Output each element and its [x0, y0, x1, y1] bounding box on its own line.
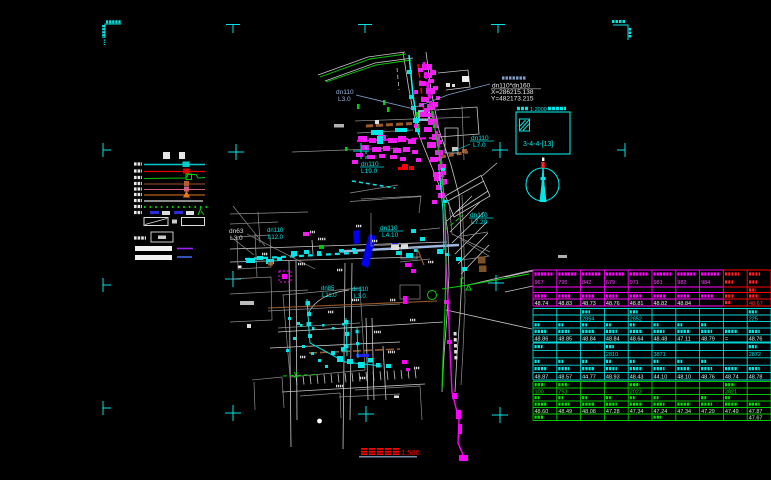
svg-text:842: 842 [582, 280, 591, 286]
svg-text:48.60: 48.60 [535, 409, 549, 415]
svg-text:48.76: 48.76 [701, 375, 715, 381]
svg-text:48.85: 48.85 [558, 337, 572, 343]
svg-text:967: 967 [535, 280, 544, 286]
svg-text:dn63: dn63 [229, 228, 244, 235]
svg-text:48.86: 48.86 [535, 337, 549, 343]
svg-text:48.84: 48.84 [677, 301, 691, 307]
svg-text:48.43: 48.43 [630, 375, 644, 381]
svg-text:L3.0: L3.0 [338, 96, 351, 103]
svg-text:L12.0: L12.0 [268, 235, 284, 241]
svg-text:44.77: 44.77 [582, 375, 596, 381]
svg-text:48.82: 48.82 [654, 301, 668, 307]
svg-text:981: 981 [654, 280, 663, 286]
svg-text:48.64: 48.64 [630, 337, 644, 343]
svg-text:dn85: dn85 [321, 286, 335, 292]
svg-text:L11.0: L11.0 [322, 293, 337, 299]
svg-text:48.10: 48.10 [677, 375, 691, 381]
svg-text:dn110: dn110 [336, 89, 354, 96]
svg-text:971: 971 [630, 280, 639, 286]
svg-text:47.24: 47.24 [654, 409, 668, 415]
svg-text:47.67: 47.67 [749, 416, 763, 422]
svg-text:984: 984 [701, 280, 710, 286]
svg-text:225: 225 [749, 317, 758, 323]
svg-text:L4.10: L4.10 [382, 232, 399, 239]
svg-text:47.87: 47.87 [749, 409, 763, 415]
svg-text:2852: 2852 [630, 317, 642, 323]
svg-text:47.28: 47.28 [606, 409, 620, 415]
svg-text:48.48: 48.48 [654, 337, 668, 343]
svg-text:2810: 2810 [606, 352, 618, 358]
svg-text:48.57: 48.57 [558, 375, 572, 381]
svg-text:L3.0: L3.0 [230, 235, 243, 242]
svg-text:679: 679 [606, 280, 615, 286]
svg-text:795: 795 [558, 280, 567, 286]
svg-text:48.08: 48.08 [582, 409, 596, 415]
svg-text:Y=482173.215: Y=482173.215 [491, 96, 534, 103]
svg-text:3-4-4-[13]: 3-4-4-[13] [523, 141, 553, 148]
svg-text:100: 100 [535, 389, 544, 395]
svg-text:48.84: 48.84 [582, 337, 596, 343]
svg-text:48.81: 48.81 [630, 301, 644, 307]
svg-text:48.74: 48.74 [535, 301, 549, 307]
svg-text:3871: 3871 [654, 352, 666, 358]
svg-text:48.83: 48.83 [558, 301, 572, 307]
svg-text:753: 753 [558, 389, 567, 395]
svg-text:L7.0: L7.0 [473, 142, 486, 149]
svg-text:47.34: 47.34 [630, 409, 644, 415]
svg-text:2854: 2854 [582, 317, 594, 323]
svg-text:48.87: 48.87 [535, 375, 549, 381]
svg-text:47.29: 47.29 [701, 409, 715, 415]
svg-text:L7.20: L7.20 [471, 219, 488, 226]
svg-text:44.10: 44.10 [654, 375, 668, 381]
svg-text:2021: 2021 [725, 389, 737, 395]
svg-text:48.93: 48.93 [606, 375, 620, 381]
svg-text:dn110: dn110 [352, 287, 369, 293]
svg-text:48.84: 48.84 [606, 337, 620, 343]
svg-text:1:500: 1:500 [401, 448, 420, 457]
svg-text:2023: 2023 [630, 389, 642, 395]
svg-text:48.76: 48.76 [606, 301, 620, 307]
svg-text:47.11: 47.11 [677, 337, 690, 343]
svg-text:48.79: 48.79 [701, 337, 715, 343]
svg-text:47.49: 47.49 [725, 409, 739, 415]
svg-text:48.73: 48.73 [582, 301, 596, 307]
svg-text:dn110: dn110 [267, 228, 284, 234]
svg-text:=: = [725, 337, 728, 343]
svg-text:48.78: 48.78 [749, 375, 763, 381]
svg-text:L19.0: L19.0 [361, 168, 378, 175]
svg-text:982: 982 [677, 280, 686, 286]
svg-text:47.34: 47.34 [677, 409, 691, 415]
svg-text:2872: 2872 [749, 352, 761, 358]
svg-text:48.67: 48.67 [749, 301, 763, 307]
svg-text:48.76: 48.76 [749, 337, 763, 343]
svg-text:48.74: 48.74 [725, 375, 739, 381]
svg-text:48.49: 48.49 [558, 409, 572, 415]
